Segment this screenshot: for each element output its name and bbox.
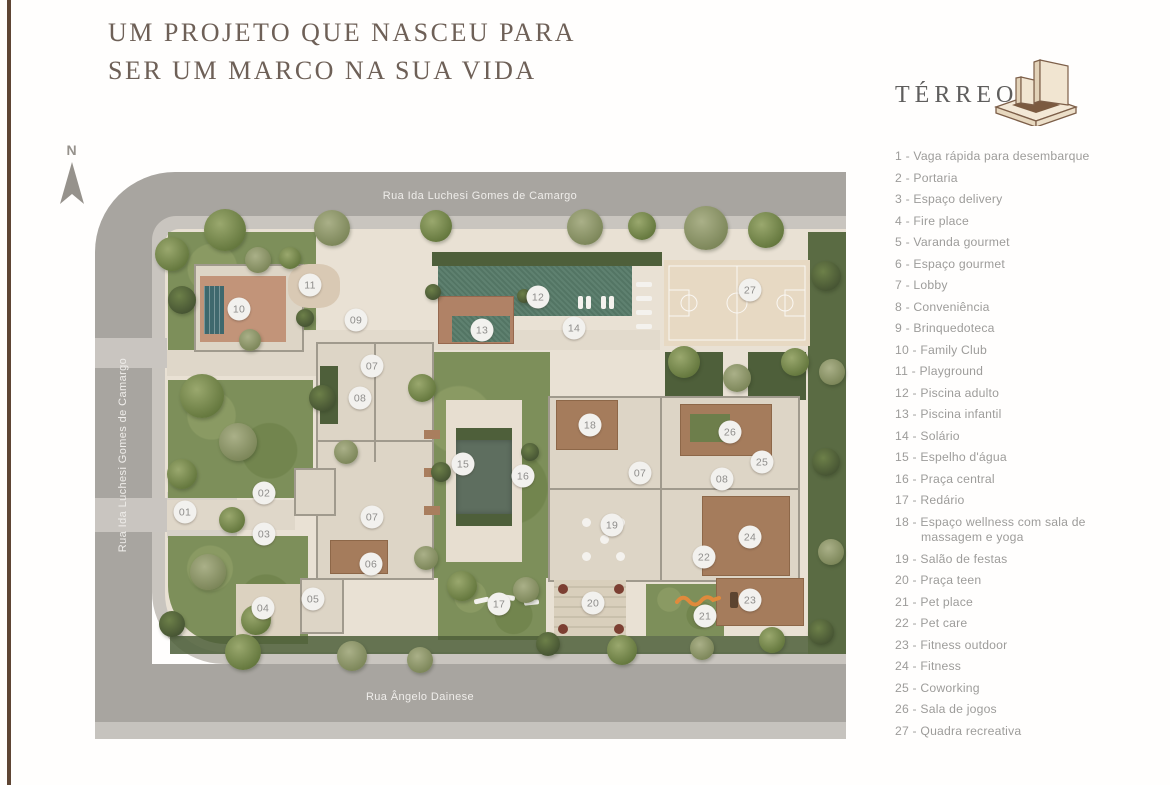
pool-lounger <box>601 296 606 309</box>
legend-item-22: 22 - Pet care <box>895 616 1107 632</box>
basketball-court <box>664 260 810 346</box>
tree <box>808 619 834 645</box>
solarium-lounger <box>636 310 652 315</box>
solarium-lounger <box>636 324 652 329</box>
plan-marker-19: 19 <box>601 514 624 537</box>
tree <box>431 462 451 482</box>
plan-marker-16: 16 <box>512 465 535 488</box>
tree <box>690 636 714 660</box>
tree <box>219 423 257 461</box>
legend-item-25: 25 - Coworking <box>895 681 1107 697</box>
plan-marker-03: 03 <box>253 523 276 546</box>
tree <box>159 611 185 637</box>
tree <box>628 212 656 240</box>
plan-marker-15: 15 <box>452 453 475 476</box>
tree <box>334 440 358 464</box>
street-label-left: Rua Ida Luchesi Gomes de Camargo <box>117 358 129 552</box>
legend-item-9: 9 - Brinquedoteca <box>895 321 1107 337</box>
tree <box>818 539 844 565</box>
legend-item-27: 27 - Quadra recreativa <box>895 724 1107 740</box>
tree <box>819 359 845 385</box>
hedge-pool-north <box>432 252 662 266</box>
tree <box>668 346 700 378</box>
page-title-line2: SER UM MARCO NA SUA VIDA <box>108 52 576 90</box>
tree <box>521 443 539 461</box>
teen-plaza-planter <box>558 624 568 634</box>
legend-item-12: 12 - Piscina adulto <box>895 386 1107 402</box>
legend-item-19: 19 - Salão de festas <box>895 552 1107 568</box>
driveway-upper <box>95 338 167 368</box>
legend-item-24: 24 - Fitness <box>895 659 1107 675</box>
tree <box>279 247 301 269</box>
legend-item-10: 10 - Family Club <box>895 343 1107 359</box>
fitness-outdoor-equipment <box>730 592 738 608</box>
tree <box>407 647 433 673</box>
tree <box>245 247 271 273</box>
tree <box>190 554 226 590</box>
water-mirror-planter-top <box>456 428 512 440</box>
legend-item-17: 17 - Redário <box>895 493 1107 509</box>
plan-marker-26: 26 <box>719 421 742 444</box>
legend-item-21: 21 - Pet place <box>895 595 1107 611</box>
legend-item-1: 1 - Vaga rápida para desembarque <box>895 149 1107 165</box>
solarium-lounger <box>636 296 652 301</box>
tree <box>180 374 224 418</box>
tree <box>781 348 809 376</box>
tree <box>513 577 539 603</box>
pool-lounger <box>578 296 583 309</box>
pool-lounger <box>609 296 614 309</box>
plan-marker-12: 12 <box>527 286 550 309</box>
legend-item-14: 14 - Solário <box>895 429 1107 445</box>
plan-marker-14: 14 <box>563 317 586 340</box>
tree <box>239 329 261 351</box>
tree <box>425 284 441 300</box>
tree <box>219 507 245 533</box>
legend-item-8: 8 - Conveniência <box>895 300 1107 316</box>
tree <box>447 571 477 601</box>
plan-marker-02: 02 <box>253 482 276 505</box>
legend-item-4: 4 - Fire place <box>895 214 1107 230</box>
path-upper <box>167 350 317 376</box>
isometric-building-icon <box>990 50 1082 131</box>
left-border-strip <box>7 0 11 785</box>
legend-item-7: 7 - Lobby <box>895 278 1107 294</box>
plan-marker-20: 20 <box>582 592 605 615</box>
legend-item-13: 13 - Piscina infantil <box>895 407 1107 423</box>
plan-marker-10: 10 <box>228 298 251 321</box>
plan-marker-17: 17 <box>488 593 511 616</box>
site-plan-page: UM PROJETO QUE NASCEU PARA SER UM MARCO … <box>0 0 1170 785</box>
legend-item-20: 20 - Praça teen <box>895 573 1107 589</box>
plan-marker-09: 09 <box>345 309 368 332</box>
plan-marker-11: 11 <box>299 274 322 297</box>
party-room-table <box>600 535 609 544</box>
plan-marker-25: 25 <box>751 451 774 474</box>
plan-marker-22: 22 <box>693 546 716 569</box>
tree <box>337 641 367 671</box>
legend-item-15: 15 - Espelho d'água <box>895 450 1107 466</box>
court-lines <box>664 260 810 346</box>
plan-marker-08: 08 <box>349 387 372 410</box>
plan-marker-24: 24 <box>739 526 762 549</box>
page-title-line1: UM PROJETO QUE NASCEU PARA <box>108 14 576 52</box>
legend-item-6: 6 - Espaço gourmet <box>895 257 1107 273</box>
plaza-table <box>424 506 440 515</box>
plan-marker-23: 23 <box>739 589 762 612</box>
hedge-bottom-strip <box>170 636 810 654</box>
tree <box>567 209 603 245</box>
teen-plaza-planter <box>558 584 568 594</box>
tree <box>759 627 785 653</box>
legend-item-23: 23 - Fitness outdoor <box>895 638 1107 654</box>
legend-item-11: 11 - Playground <box>895 364 1107 380</box>
legend-item-16: 16 - Praça central <box>895 472 1107 488</box>
sidewalk-bottom-outer <box>95 722 846 739</box>
plan-marker-08: 08 <box>711 468 734 491</box>
tree <box>684 206 728 250</box>
tree <box>167 459 197 489</box>
water-mirror <box>456 440 512 514</box>
tree <box>225 634 261 670</box>
tree <box>314 210 350 246</box>
plan-marker-07: 07 <box>361 506 384 529</box>
plan-marker-27: 27 <box>739 279 762 302</box>
tree <box>414 546 438 570</box>
plan-marker-07: 07 <box>629 462 652 485</box>
teen-plaza-planter <box>614 624 624 634</box>
tree <box>811 261 841 291</box>
tree <box>155 237 189 271</box>
tree <box>168 286 196 314</box>
plan-marker-07: 07 <box>361 355 384 378</box>
legend-item-5: 5 - Varanda gourmet <box>895 235 1107 251</box>
pool-lounger <box>586 296 591 309</box>
legend-list: 1 - Vaga rápida para desembarque2 - Port… <box>895 149 1107 745</box>
tower-right-wall <box>548 488 800 490</box>
legend-item-18: 18 - Espaço wellness com sala de massage… <box>895 515 1107 546</box>
plan-marker-18: 18 <box>579 414 602 437</box>
street-label-bottom: Rua Ângelo Dainese <box>366 691 474 703</box>
plan-marker-01: 01 <box>174 501 197 524</box>
north-label: N <box>66 142 77 158</box>
north-arrow-icon <box>55 160 89 206</box>
tree <box>420 210 452 242</box>
street-label-top: Rua Ida Luchesi Gomes de Camargo <box>383 190 577 202</box>
plan-marker-21: 21 <box>694 605 717 628</box>
teen-plaza-planter <box>614 584 624 594</box>
plan-marker-13: 13 <box>471 319 494 342</box>
plaza-table <box>424 430 440 439</box>
tree <box>309 385 335 411</box>
green-strip-right <box>808 232 846 654</box>
party-room-table <box>582 552 591 561</box>
tree <box>748 212 784 248</box>
legend-item-26: 26 - Sala de jogos <box>895 702 1107 718</box>
plan-marker-06: 06 <box>360 553 383 576</box>
water-mirror-planter-bottom <box>456 514 512 526</box>
tree <box>536 632 560 656</box>
tree <box>408 374 436 402</box>
legend-item-3: 3 - Espaço delivery <box>895 192 1107 208</box>
party-room-table <box>616 552 625 561</box>
tree <box>204 209 246 251</box>
driveway-entrance <box>95 498 167 532</box>
family-club-pool <box>204 286 224 334</box>
tree <box>296 309 314 327</box>
plan-marker-05: 05 <box>302 588 325 611</box>
gatehouse <box>294 468 336 516</box>
tree <box>723 364 751 392</box>
tree <box>607 635 637 665</box>
solarium-lounger <box>636 282 652 287</box>
tree <box>812 448 840 476</box>
north-indicator: N <box>52 142 92 211</box>
plan-marker-04: 04 <box>252 597 275 620</box>
party-room-table <box>582 518 591 527</box>
legend-item-2: 2 - Portaria <box>895 171 1107 187</box>
page-title: UM PROJETO QUE NASCEU PARA SER UM MARCO … <box>108 14 576 90</box>
